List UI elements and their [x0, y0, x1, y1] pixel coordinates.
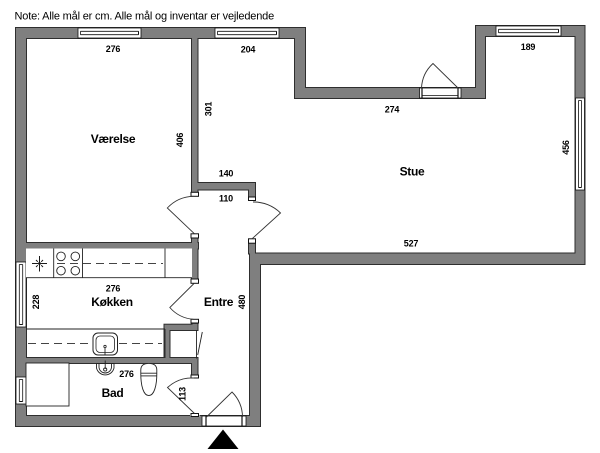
svg-text:480: 480 — [237, 295, 247, 310]
svg-text:Stue: Stue — [400, 165, 425, 179]
svg-text:228: 228 — [31, 295, 41, 310]
svg-text:204: 204 — [241, 44, 256, 54]
svg-text:Værelse: Værelse — [91, 132, 136, 146]
svg-text:110: 110 — [219, 194, 233, 204]
svg-text:301: 301 — [204, 102, 214, 117]
svg-text:456: 456 — [561, 140, 571, 155]
svg-text:527: 527 — [404, 239, 419, 249]
svg-text:113: 113 — [178, 387, 188, 401]
svg-text:Note: Alle mål er cm. Alle mål: Note: Alle mål er cm. Alle mål og invent… — [15, 11, 275, 23]
svg-text:274: 274 — [385, 105, 400, 115]
svg-text:Bad: Bad — [102, 386, 124, 400]
svg-text:276: 276 — [106, 284, 121, 294]
svg-text:406: 406 — [175, 133, 185, 148]
svg-text:Entre: Entre — [204, 295, 234, 309]
svg-text:276: 276 — [106, 44, 121, 54]
svg-text:276: 276 — [119, 369, 134, 379]
svg-text:189: 189 — [521, 42, 536, 52]
svg-text:140: 140 — [219, 169, 234, 179]
svg-text:Køkken: Køkken — [91, 295, 133, 309]
